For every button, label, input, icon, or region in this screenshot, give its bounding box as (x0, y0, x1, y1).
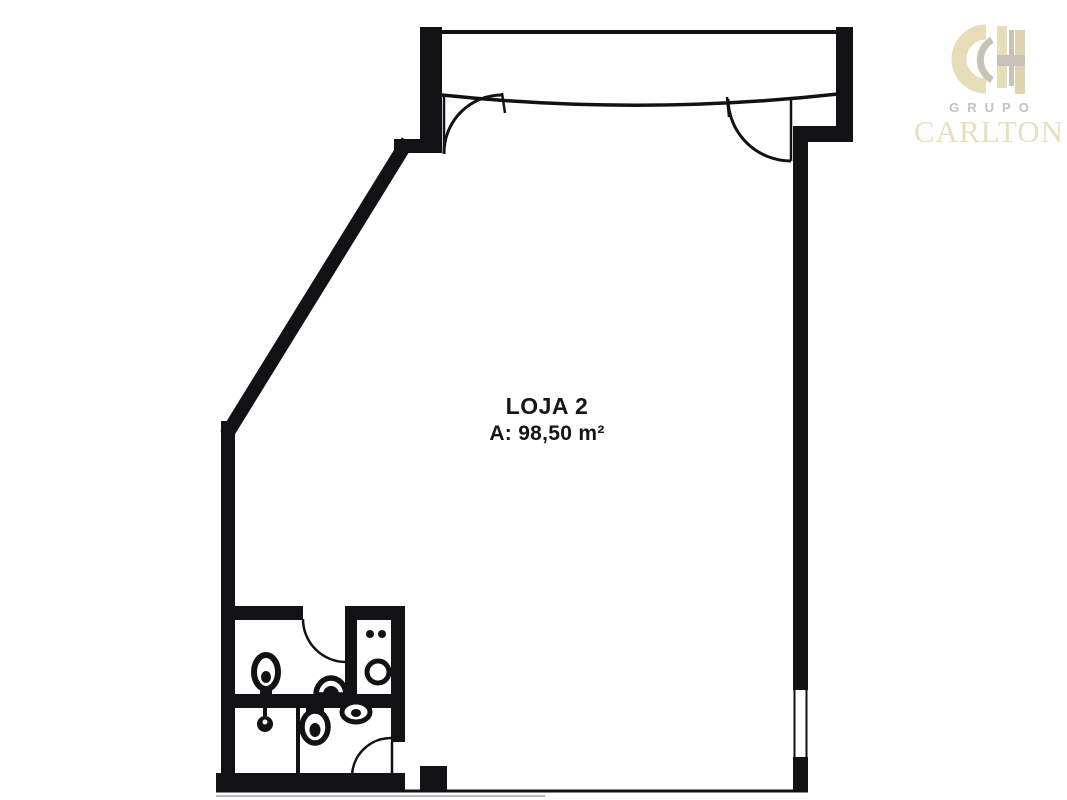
toilet-icon (302, 707, 328, 743)
wall-right-upper (793, 126, 808, 690)
unit-name: LOJA 2 (437, 392, 657, 421)
fixtures (254, 630, 389, 743)
bath-middle-wall (221, 694, 405, 708)
door-swing-arc-upper-bath (303, 619, 346, 662)
wall-sink-icon (316, 678, 346, 695)
door-swing-arc-right (728, 99, 791, 161)
bath-divider-wall (296, 708, 300, 788)
carlton-logo: GRUPO CARLTON (910, 18, 1067, 150)
door-swing-arc-left (444, 95, 502, 154)
wall-right-lower (793, 757, 808, 792)
logo-brand-label: CARLTON (910, 114, 1067, 150)
floor-drain-icon (257, 708, 273, 732)
wall-diagonal (230, 147, 404, 429)
wall-top-left-pier (420, 27, 442, 152)
wall-top-right-pier (836, 27, 853, 128)
bathroom-walls (221, 606, 405, 788)
floor-plan-page: LOJA 2 A: 98,50 m² GRUPO CARLTON (0, 0, 1067, 800)
toilet-icon (254, 655, 278, 697)
oval-sink-icon (342, 702, 370, 722)
logo-group-label: GRUPO (910, 100, 1067, 115)
bath-top-wall-left (221, 606, 303, 620)
round-basin-icon (367, 661, 389, 683)
glass-mullion-tick (502, 93, 505, 113)
column (420, 766, 447, 792)
wall-bottom (216, 773, 405, 790)
counter-dots-icon (366, 630, 386, 638)
room-label: LOJA 2 A: 98,50 m² (437, 392, 657, 447)
carlton-monogram-icon (910, 18, 1067, 98)
unit-area: A: 98,50 m² (437, 421, 657, 447)
door-swing-arc-lower-bath (352, 738, 391, 777)
bath-right-wall (391, 606, 405, 742)
